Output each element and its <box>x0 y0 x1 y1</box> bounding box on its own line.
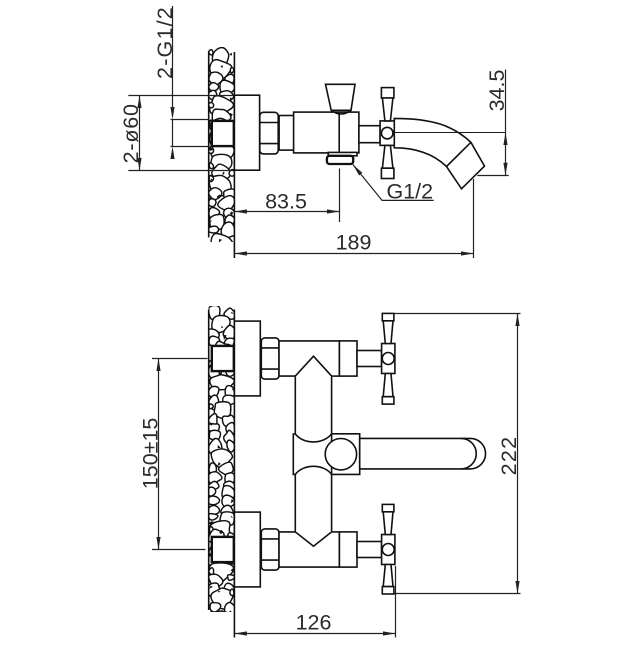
svg-text:2-ø60: 2-ø60 <box>119 103 143 163</box>
svg-text:2-G1/2: 2-G1/2 <box>153 6 177 79</box>
svg-text:222: 222 <box>497 436 521 476</box>
svg-text:189: 189 <box>336 231 372 255</box>
svg-text:126: 126 <box>296 611 332 635</box>
svg-text:150±15: 150±15 <box>139 418 163 490</box>
svg-text:83.5: 83.5 <box>265 190 307 214</box>
svg-text:34.5: 34.5 <box>485 70 509 112</box>
svg-text:G1/2: G1/2 <box>387 180 434 204</box>
